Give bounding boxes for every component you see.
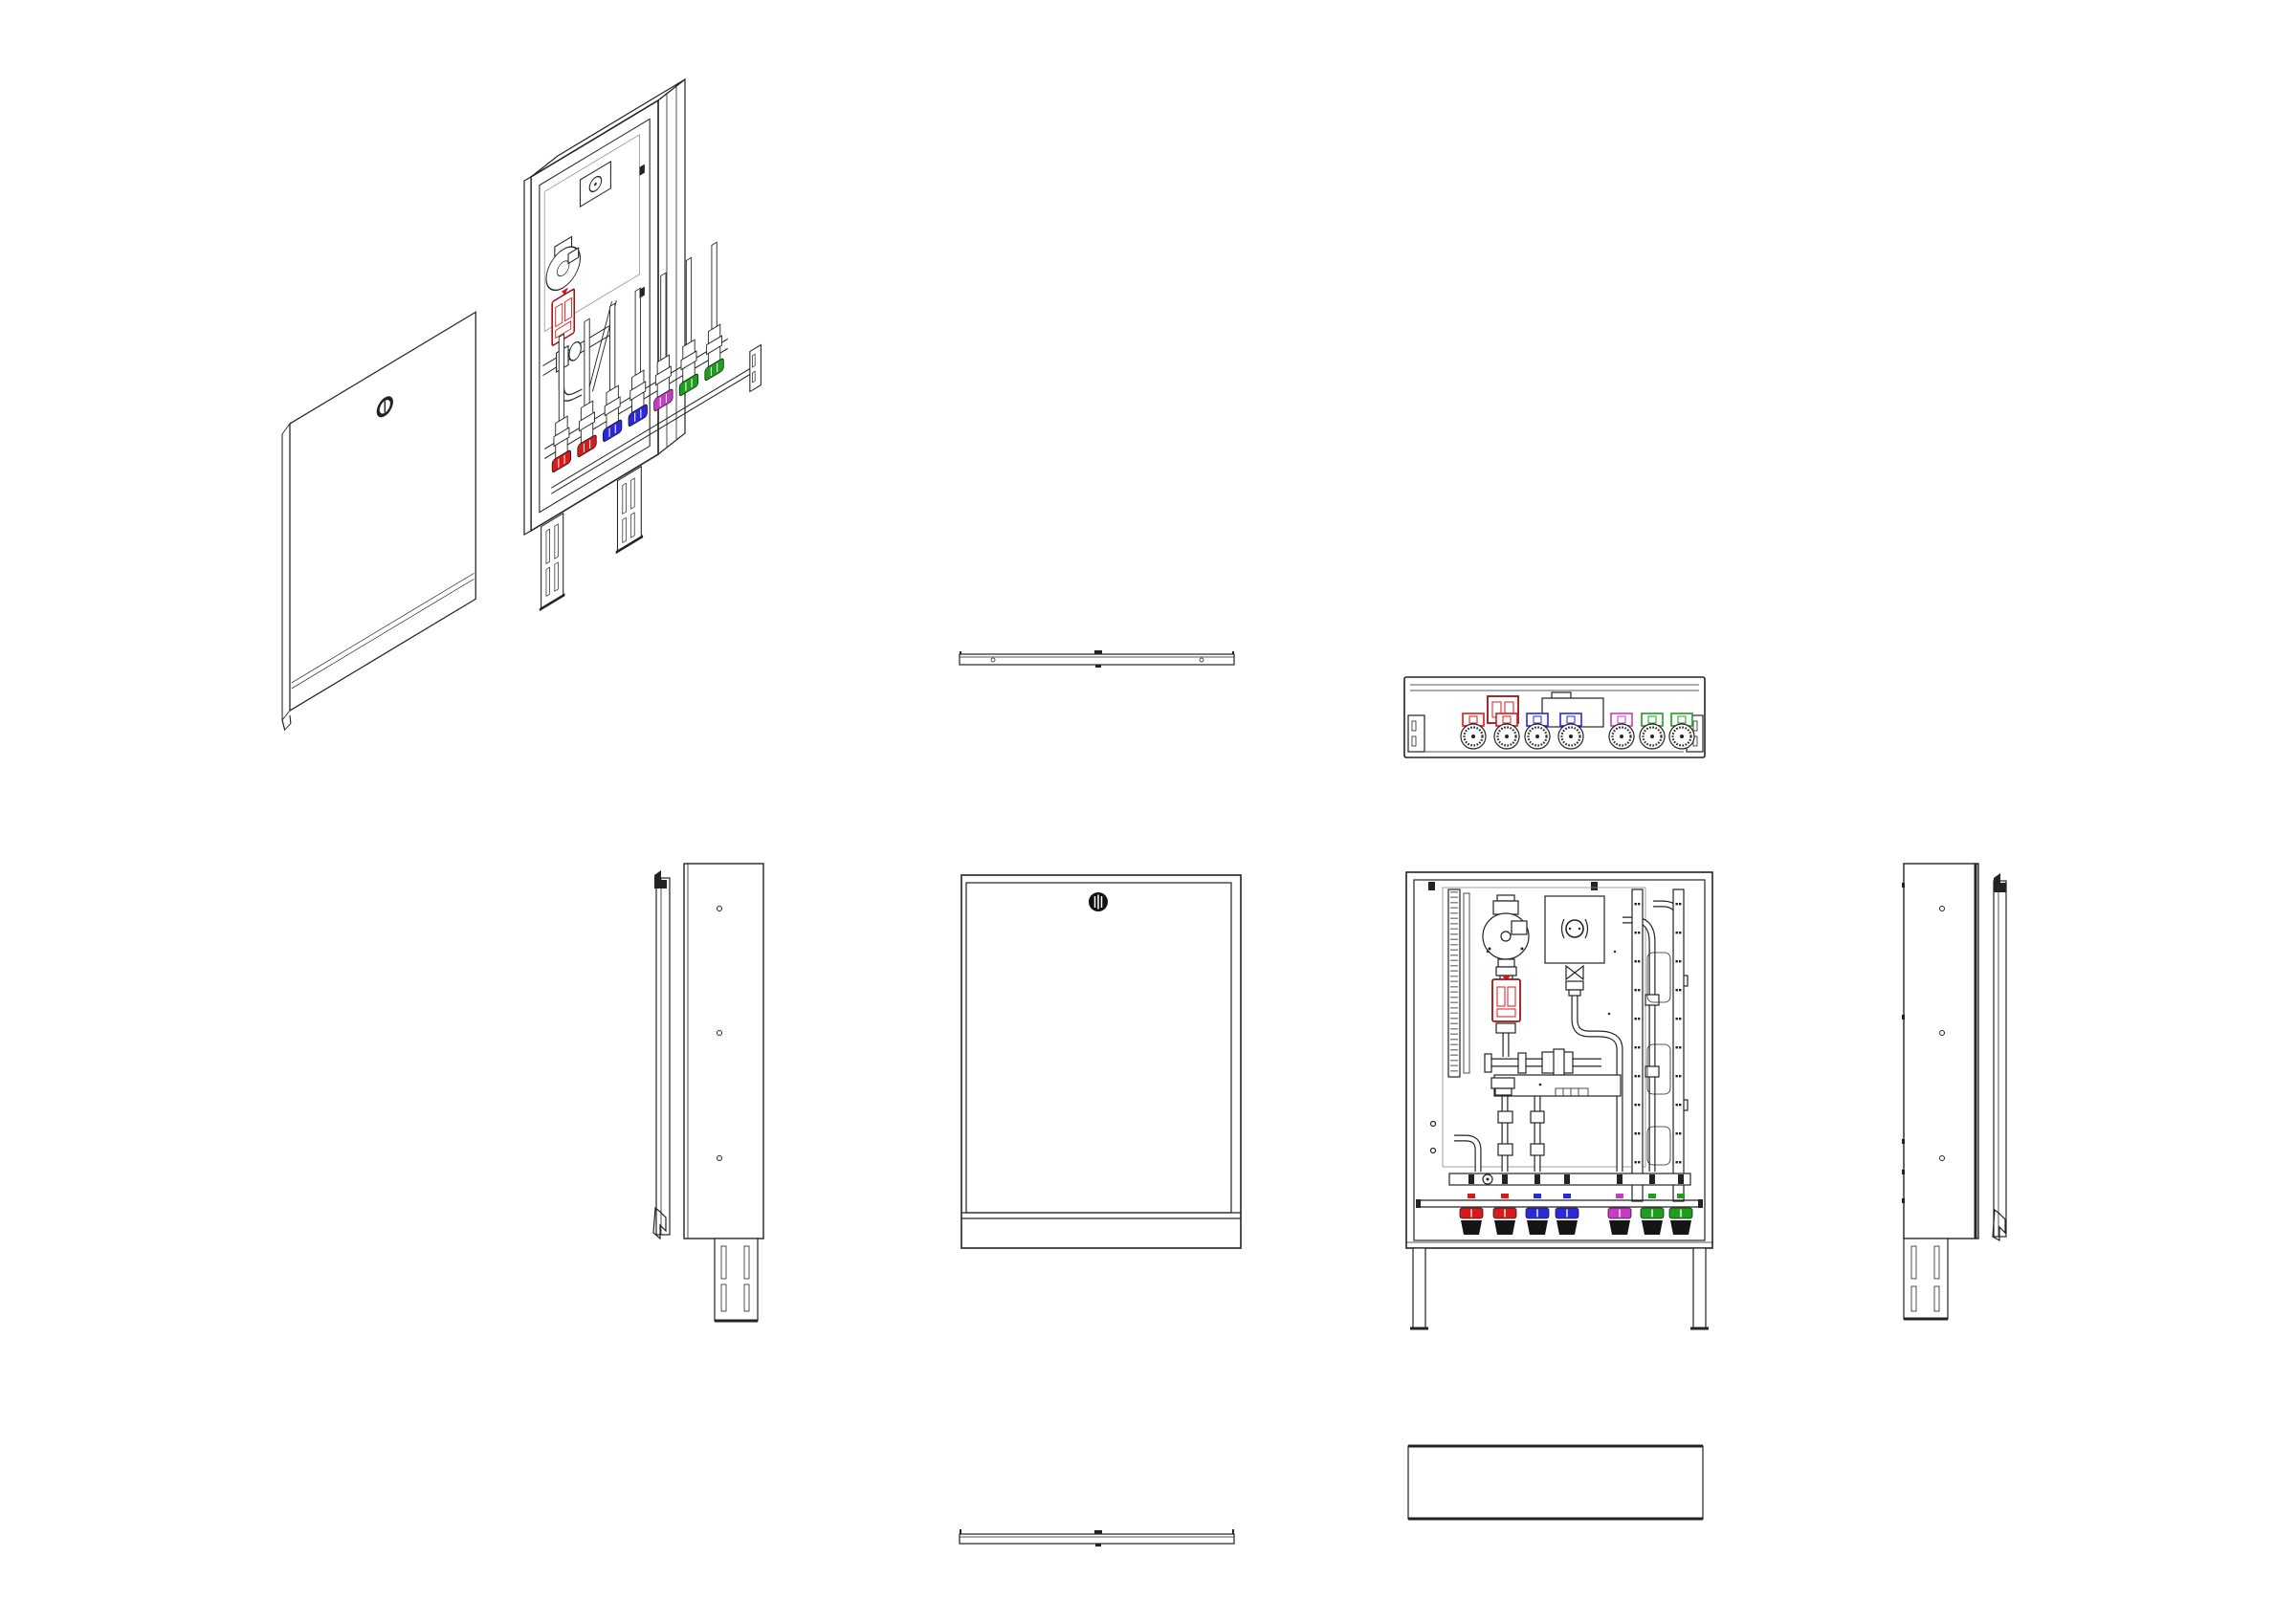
iso-cabinet bbox=[524, 53, 761, 610]
cabinet-leg bbox=[540, 513, 565, 610]
valve-cap bbox=[1556, 1220, 1578, 1235]
cabinet-profile bbox=[684, 864, 763, 1239]
front-view-closed bbox=[957, 870, 1253, 1255]
cabinet-leg bbox=[616, 466, 643, 553]
door-profile bbox=[1993, 873, 2006, 1240]
bottom-view-door bbox=[957, 1519, 1244, 1553]
manifold-clip bbox=[1468, 1174, 1474, 1184]
loop-color-tick bbox=[1501, 1194, 1509, 1198]
wall-bracket bbox=[1408, 715, 1424, 752]
valve-cap bbox=[1609, 1220, 1630, 1235]
control-box bbox=[1545, 896, 1604, 963]
cabinet-leg bbox=[715, 1239, 758, 1321]
door-lock-icon bbox=[1089, 892, 1108, 911]
valve-cap bbox=[1461, 1220, 1482, 1235]
iso-exploded-view bbox=[268, 38, 804, 765]
cabinet-profile bbox=[1902, 864, 1978, 1239]
top-view-door bbox=[957, 643, 1244, 675]
side-view-left bbox=[639, 854, 775, 1347]
valve-cap bbox=[1527, 1220, 1548, 1235]
loop-color-tick bbox=[1563, 1194, 1571, 1198]
manifold-clip bbox=[1502, 1174, 1508, 1184]
door-hinge bbox=[1591, 882, 1598, 890]
bottom-view-cabinet bbox=[1397, 1433, 1722, 1530]
loop-color-tick bbox=[1677, 1194, 1685, 1198]
front-view-open bbox=[1397, 861, 1727, 1339]
side-view-right bbox=[1892, 854, 2028, 1347]
cabinet-leg bbox=[1690, 1248, 1709, 1328]
drawing-canvas bbox=[0, 0, 2296, 1623]
top-view-cabinet bbox=[1397, 660, 1722, 770]
iso-door-panel bbox=[282, 312, 475, 732]
door-face bbox=[966, 883, 1231, 1213]
door-hinge bbox=[1428, 882, 1435, 890]
loop-color-tick bbox=[1648, 1194, 1656, 1198]
loop-color-tick bbox=[1468, 1194, 1475, 1198]
loop-color-tick bbox=[1616, 1194, 1623, 1198]
cabinet-leg bbox=[1410, 1248, 1428, 1328]
cabinet-leg bbox=[1904, 1239, 1948, 1319]
loop-color-tick bbox=[1534, 1194, 1541, 1198]
valve-cap bbox=[1670, 1220, 1691, 1235]
valve-cap bbox=[1494, 1220, 1515, 1235]
manifold-clip bbox=[1534, 1174, 1540, 1184]
manifold-clip bbox=[1649, 1174, 1655, 1184]
manifold-clip bbox=[1617, 1174, 1623, 1184]
manifold-clip bbox=[1564, 1174, 1570, 1184]
door-profile bbox=[653, 870, 670, 1239]
valve-cap bbox=[1642, 1220, 1663, 1235]
manifold-clip bbox=[1678, 1174, 1684, 1184]
